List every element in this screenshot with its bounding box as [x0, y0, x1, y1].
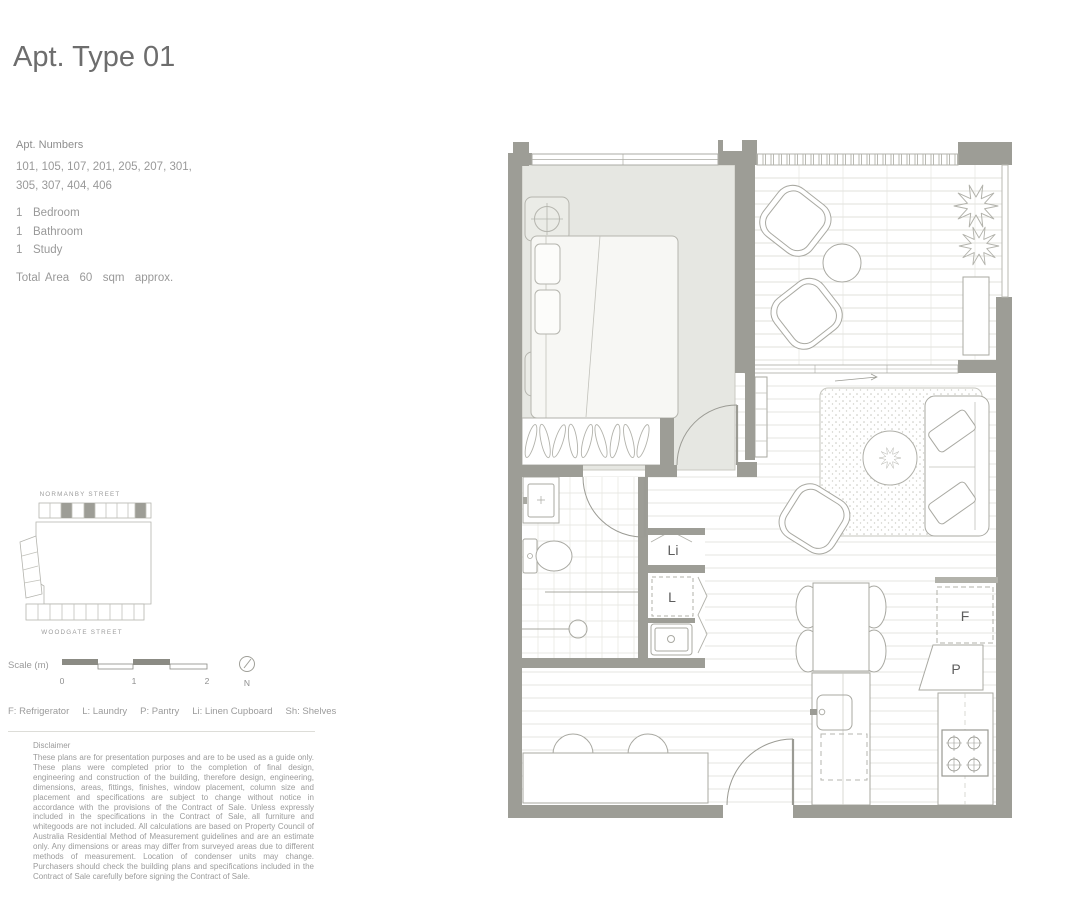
dining-table: [813, 583, 869, 671]
pantry-label: P: [951, 661, 960, 677]
scale-label: Scale (m): [8, 660, 49, 671]
scale-tick-1: 1: [132, 676, 137, 686]
shelves: [755, 377, 767, 457]
room-row-study: 1 Study: [16, 241, 83, 260]
apt-numbers-label: Apt. Numbers: [16, 139, 83, 151]
legend-item-pantry: P: Pantry: [140, 706, 179, 717]
kitchen-island: [810, 673, 870, 805]
balcony-balustrade: [757, 154, 958, 165]
legend-item-fridge: F: Refrigerator: [8, 706, 69, 717]
bedside-table-1: [525, 197, 569, 241]
sofa: [925, 396, 989, 536]
room-list: 1 Bedroom 1 Bathroom 1 Study: [16, 204, 83, 260]
room-row-bedroom: 1 Bedroom: [16, 204, 83, 223]
pillow: [535, 290, 560, 334]
brochure-page: Apt. Type 01 Apt. Numbers 101, 105, 107,…: [0, 0, 1080, 898]
scale-segments: [62, 659, 207, 669]
street-label-top: NORMANBY STREET: [40, 491, 121, 498]
bed: [531, 236, 678, 418]
apt-numbers-line-1: 101, 105, 107, 201, 205, 207, 301,: [16, 158, 192, 177]
floorplan-svg: Li L F P: [505, 140, 1015, 820]
locator-map: NORMANBY STREET WOODGATE STREET: [6, 486, 211, 641]
disclaimer-body: These plans are for presentation purpose…: [33, 753, 314, 882]
scale-tick-2: 2: [205, 676, 210, 686]
disclaimer-heading: Disclaimer: [33, 741, 70, 750]
toilet: [523, 539, 572, 573]
linen-cupboard-label: Li: [668, 542, 679, 558]
laundry-tub: [651, 624, 692, 655]
vanity-sink: [523, 477, 559, 523]
locator-building-plate: [36, 522, 151, 604]
pillow: [535, 244, 560, 284]
bedroom-window: [532, 154, 718, 165]
legend-item-laundry: L: Laundry: [82, 706, 127, 717]
divider-line: [8, 731, 315, 732]
legend-item-shelves: Sh: Shelves: [286, 706, 337, 717]
study-desk: [523, 753, 708, 803]
locator-bottom-units: [26, 604, 144, 620]
cooktop-counter: [938, 693, 993, 805]
wardrobe: [522, 418, 662, 465]
balcony-edge: [1002, 165, 1008, 297]
north-compass-icon: [240, 657, 255, 672]
scale-bar: Scale (m) 0 1 2 N: [8, 656, 258, 688]
tap-icon: [810, 709, 817, 715]
legend: F: Refrigerator L: Laundry P: Pantry Li:…: [8, 706, 336, 717]
fridge-label: F: [961, 608, 970, 624]
coffee-table: [863, 431, 917, 485]
total-area: Total Area 60 sqm approx.: [16, 272, 173, 284]
room-row-bathroom: 1 Bathroom: [16, 223, 83, 242]
planter-box: [963, 277, 989, 355]
cooktop: [942, 730, 988, 776]
apt-numbers-line-2: 305, 307, 404, 406: [16, 177, 192, 196]
locator-top-units: [39, 503, 151, 518]
page-title: Apt. Type 01: [13, 41, 175, 74]
street-label-bottom: WOODGATE STREET: [41, 629, 123, 636]
bedroom: [522, 197, 678, 465]
legend-item-linen: Li: Linen Cupboard: [192, 706, 272, 717]
apt-numbers-value: 101, 105, 107, 201, 205, 207, 301, 305, …: [16, 158, 192, 195]
north-label: N: [244, 678, 250, 688]
laundry-label: L: [668, 589, 676, 605]
balcony-table: [823, 244, 861, 282]
scale-tick-0: 0: [60, 676, 65, 686]
